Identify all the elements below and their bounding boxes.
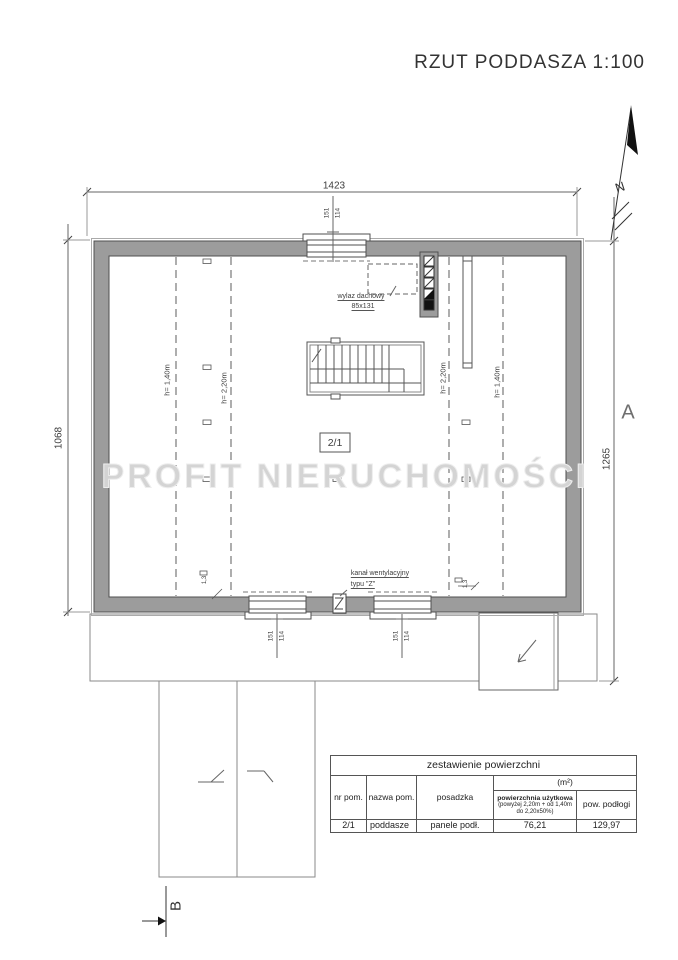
dim-height-right: 1265: [602, 448, 613, 470]
vent-duct: [333, 590, 347, 613]
win-bl-dim-height: 114: [279, 631, 286, 641]
watermark: PROFIT NIERUCHOMOŚCI: [102, 458, 589, 497]
cell-room-name: poddasze: [367, 819, 417, 832]
cell-floor-finish: panele podł.: [417, 819, 494, 832]
height-dashed-lines: [176, 257, 503, 596]
knee-wall-dim-right: 1,3: [463, 580, 469, 588]
roof-hatch-label: wylaz dachowy: [337, 293, 384, 301]
cell-room-no: 2/1: [331, 819, 367, 832]
section-b-label: B: [168, 901, 185, 911]
staircase: [307, 338, 424, 399]
vent-duct-type: typu "Z": [351, 581, 375, 589]
col-header-usable-area: powierzchnia użytkowa (powyżej 2,20m + o…: [494, 791, 577, 819]
north-arrow-icon: [611, 105, 638, 240]
window-top: [303, 234, 370, 261]
height-label-220-left: h= 2,20m: [220, 372, 229, 403]
room-number-tag: 2/1: [328, 437, 343, 449]
area-summary-table: zestawienie powierzchni nr pom. nazwa po…: [330, 755, 637, 833]
roof-hatch-size: 85x131: [352, 303, 375, 311]
section-b-marker: [142, 886, 166, 937]
cell-usable-area: 76,21: [494, 819, 577, 832]
col-header-floor-area: pow. podłogi: [577, 791, 636, 819]
win-br-dim-height: 114: [404, 631, 411, 641]
roof-hatch: [368, 264, 417, 296]
vent-duct-label: kanał wentylacyjny: [351, 570, 409, 578]
section-a-label: A: [621, 402, 634, 425]
cell-floor-area: 129,97: [577, 819, 636, 832]
col-header-unit: (m²): [494, 776, 636, 791]
height-label-140-left: h= 1,40m: [163, 364, 172, 395]
col-header-floor-finish: posadzka: [417, 776, 494, 819]
roof-beam: [463, 256, 472, 368]
dim-height-left: 1068: [54, 427, 65, 449]
floor-plan-page: RZUT PODDASZA 1:100 N 1423 1068 1265 151…: [0, 0, 678, 960]
col-header-room-no: nr pom.: [331, 776, 367, 819]
height-label-220-right: h= 2,20m: [439, 362, 448, 393]
col-header-room-name: nazwa pom.: [367, 776, 417, 819]
height-label-140-right: h= 1,40m: [493, 366, 502, 397]
chimney-block: [420, 252, 438, 317]
win-br-dim-width: 151: [393, 631, 400, 642]
usable-area-main: powierzchnia użytkowa: [497, 795, 573, 802]
knee-wall-dim-left: 1,3: [202, 576, 208, 584]
table-title: zestawienie powierzchni: [331, 756, 636, 776]
usable-area-note: (powyżej 2,20m + od 1,40m do 2,20x50%): [495, 802, 575, 815]
window-dim-lines: [271, 196, 408, 658]
dim-width-top: 1423: [323, 181, 345, 192]
win-bl-dim-width: 151: [268, 631, 275, 642]
win-top-dim-height: 114: [335, 208, 342, 218]
drawing-title: RZUT PODDASZA 1:100: [395, 52, 645, 74]
win-top-dim-width: 151: [324, 208, 331, 219]
garage-roof-square: [479, 613, 558, 690]
